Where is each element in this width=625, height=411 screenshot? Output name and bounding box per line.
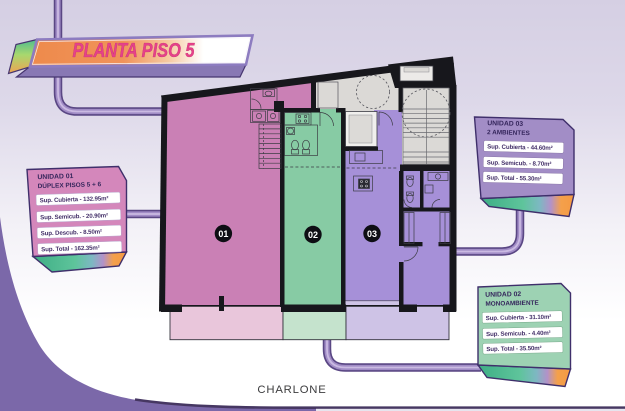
svg-text:Sup. Cubierta - 31.10m²: Sup. Cubierta - 31.10m² <box>486 314 552 322</box>
svg-text:02: 02 <box>308 230 318 240</box>
svg-text:Sup. Semicub. - 4.40m²: Sup. Semicub. - 4.40m² <box>486 330 551 338</box>
svg-text:PLANTA PISO 5: PLANTA PISO 5 <box>73 38 196 61</box>
svg-text:UNIDAD 01: UNIDAD 01 <box>37 173 73 181</box>
svg-text:UNIDAD 03: UNIDAD 03 <box>487 120 523 128</box>
svg-text:03: 03 <box>367 229 377 239</box>
svg-text:Sup. Total - 55.30m²: Sup. Total - 55.30m² <box>486 174 541 182</box>
svg-text:CHARLONE: CHARLONE <box>257 384 326 396</box>
svg-text:UNIDAD 02: UNIDAD 02 <box>485 291 521 299</box>
svg-text:01: 01 <box>218 229 228 239</box>
svg-text:Sup. Total - 35.50m²: Sup. Total - 35.50m² <box>486 345 541 353</box>
svg-text:2 AMBIENTES: 2 AMBIENTES <box>487 129 531 137</box>
svg-text:MONOAMBIENTE: MONOAMBIENTE <box>485 300 539 308</box>
